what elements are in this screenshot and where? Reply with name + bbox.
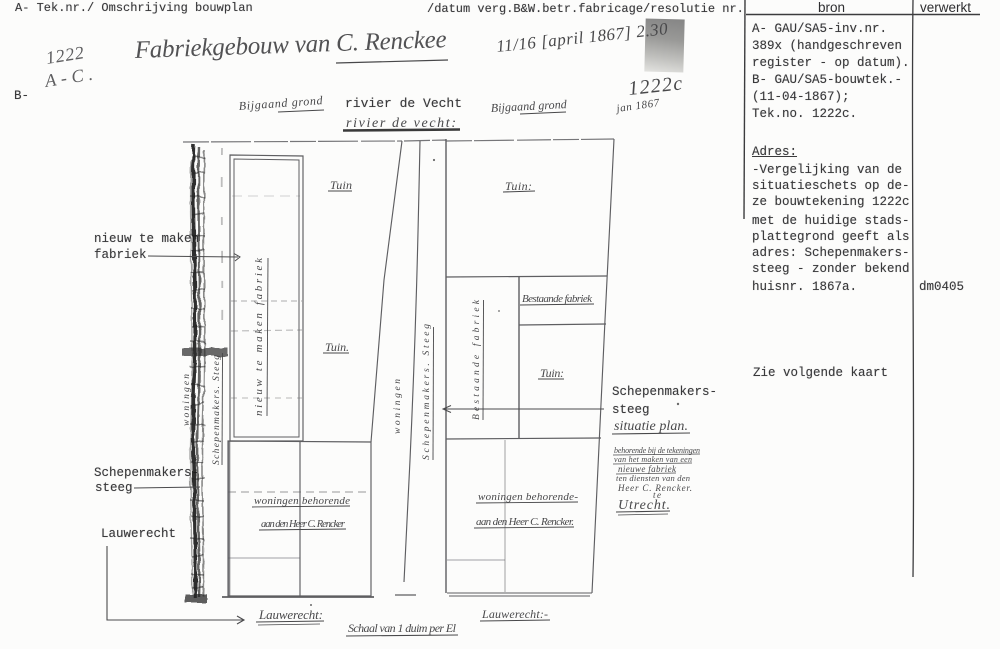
svg-text:1222c: 1222c [627,72,683,100]
svg-text:woningen: woningen [393,379,403,434]
svg-text:Tuin.: Tuin. [325,340,349,354]
svg-text:Schepenmakers. Steeg: Schepenmakers. Steeg [212,355,222,465]
svg-text:ten diensten van den: ten diensten van den [616,473,690,483]
svg-text:11/16 [april 1867] 2.30: 11/16 [april 1867] 2.30 [495,19,669,56]
svg-text:Schaal van 1 duim per El: Schaal van 1 duim per El [348,621,457,635]
svg-text:van het maken van een: van het maken van een [614,455,692,464]
svg-text:A-C.: A-C. [43,64,95,91]
svg-text:situatie plan.: situatie plan. [614,419,688,434]
svg-text:aan den Heer C. Rencker: aan den Heer C. Rencker [261,519,346,530]
svg-text:Bijgaand grond: Bijgaand grond [238,93,324,113]
svg-text:Bestaande fabriek: Bestaande fabriek [471,299,482,420]
svg-text:woningen behorende: woningen behorende [254,495,350,507]
svg-text:woningen behorende-: woningen behorende- [478,491,578,503]
svg-text:Fabriekgebouw van C. Renckee: Fabriekgebouw van C. Renckee [133,26,447,64]
svg-text:jan 1867: jan 1867 [614,97,661,115]
svg-text:Bestaande fabriek: Bestaande fabriek [522,293,593,305]
svg-text:nieuw te maken fabriek: nieuw te maken fabriek [253,257,265,416]
svg-text:Lauwerecht:: Lauwerecht: [258,607,323,622]
svg-text:1222: 1222 [44,42,85,68]
svg-text:woningen: woningen [182,374,192,426]
svg-text:Schepenmakers. Steeg: Schepenmakers. Steeg [422,324,432,460]
svg-text:Lauwerecht:-: Lauwerecht:- [481,607,548,621]
svg-text:Tuin: Tuin [330,178,352,192]
svg-text:Tuin:: Tuin: [540,366,564,380]
svg-text:behorende bij de tekeningen: behorende bij de tekeningen [614,446,700,455]
svg-text:aan den Heer C. Rencker.: aan den Heer C. Rencker. [476,516,574,528]
